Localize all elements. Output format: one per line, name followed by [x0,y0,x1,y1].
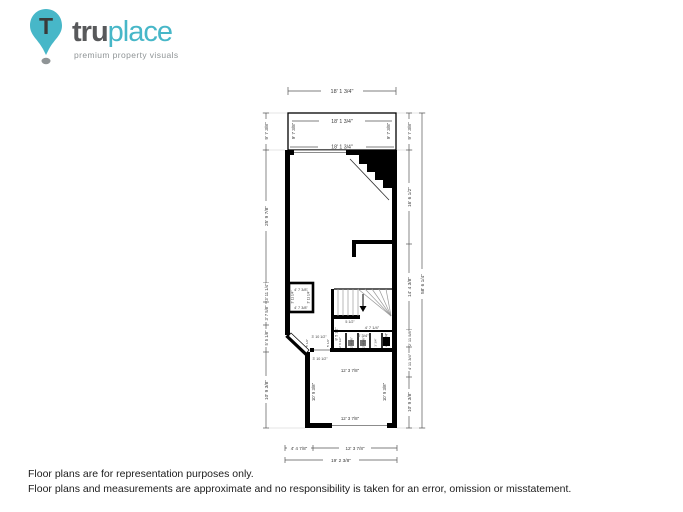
dim-hall-top: 3' 10 1/2" [312,335,328,339]
dim-bath-c2: 2' 4 5/8" [350,337,354,348]
dim-room-left: 10' 9 3/8" [311,382,316,401]
dim-top-overall: 18' 1 3/4" [331,89,354,95]
dim-main-top-width: 18' 1 3/4" [331,145,353,151]
dim-bath-c4: 3' 3/4" [374,338,378,346]
stair-left-wall [331,289,334,352]
bottom-room: 12' 3 7/8" 10' 9 3/8" 10' 9 3/8" 12' 3 7… [311,368,387,421]
dim-hall-left: 5' 1/2" [305,339,309,347]
dim-right-seg1: 9' 7 3/8" [407,122,413,140]
dim-room-right: 10' 9 3/8" [382,382,387,401]
dim-line-top: 18' 1 3/4" [288,86,396,95]
dim-left-seg1: 9' 7 3/8" [264,122,270,140]
dim-deck-left: 9' 7 3/8" [291,122,296,139]
disclaimer-line-2: Floor plans and measurements are approxi… [28,483,571,495]
dim-hall-right: 5' 1/2" [326,339,330,347]
dim-closet-bottom: 4' 7 3/8" [294,306,308,310]
dim-deck-right: 9' 7 3/8" [386,122,391,139]
stair-arrow-head [360,306,367,312]
page: T truplace premium property visuals 18' … [0,0,683,512]
dim-right-total: 58' 6 1/4" [420,274,426,294]
dim-hall-door: 3' 10 1/2" [313,357,329,361]
dim-right-seg3: 14' 4 3/8" [407,277,413,297]
wall-right [392,150,397,428]
dim-left-seg3: 3' 11 1/4" [264,283,269,301]
dim-bottom-seg2: 12' 3 7/8" [345,446,364,451]
wall-left-lower [305,352,310,428]
dim-bath-c3: 2' 4 5/8" [362,337,366,348]
dim-stair-width: 4' 7 1/4" [365,325,380,330]
dim-bottom-seg1: 4' 4 7/8" [291,446,308,451]
dim-deck-width: 18' 1 3/4" [331,119,353,125]
wall-bottom-left [305,423,332,428]
wall-bottom-right [387,423,397,428]
deck: 18' 1 3/4" 9' 7 3/8" 9' 7 3/8" 18' 1 3/4… [288,113,396,151]
bathroom: 8' 3/4" 2' 8 1/2" 2' 4 5/8" 2' 4 5/8" 3'… [334,331,392,348]
dim-line-right-outer: 58' 6 1/4" [418,113,426,428]
dim-left-seg5: 5' 5 1/8" [264,330,269,346]
floor-plan: 18' 1 3/4" 9' 7 3/8" 9' 7 3/8" 18' 1 3/4… [0,0,683,512]
dim-bottom-total: 19' 2 3/8" [331,458,351,464]
dim-left-seg4: 3' 7 5/8" [264,305,269,321]
dim-right-seg6: 10' 9 3/8" [407,392,413,412]
dim-line-bottom: 4' 4 7/8" 12' 3 7/8" 19' 2 3/8" [285,444,397,464]
fireplace [350,155,392,200]
dim-right-seg4: 2' 11 5/8" [407,329,412,346]
dim-left-seg2: 25' 9 7/8" [264,206,270,226]
dim-room-bottom-width: 12' 3 7/8" [341,416,360,421]
dim-right-seg5: 4' 11 3/4" [407,353,412,370]
dim-bath-c1: 2' 8 1/2" [338,337,342,348]
kitchen-wall [352,240,397,257]
dim-right-seg2: 16' 6 1/2" [407,187,413,207]
fireplace-steps [359,155,392,188]
dim-closet-right: 3' 11 1/4" [307,290,311,303]
fixture-dark [383,337,390,346]
dim-closet-left: 3' 11 1/4" [291,290,295,303]
dim-line-right-inner: 9' 7 3/8" 16' 6 1/2" 14' 4 3/8" 2' 11 5/… [405,113,413,428]
floor-plan-svg: 18' 1 3/4" 9' 7 3/8" 9' 7 3/8" 18' 1 3/4… [0,0,683,512]
dim-room-top-width: 12' 3 7/8" [341,368,360,373]
disclaimer: Floor plans are for representation purpo… [28,468,571,498]
interior-wall [330,348,397,352]
closet: 4' 7 3/8" 4' 7 3/8" 3' 11 1/4" 3' 11 1/4… [289,283,313,312]
disclaimer-line-1: Floor plans are for representation purpo… [28,468,571,480]
dim-line-left: 9' 7 3/8" 25' 9 7/8" 3' 11 1/4" 3' 7 5/8… [262,113,270,428]
dim-left-seg6: 10' 9 3/8" [264,380,270,400]
dim-stair-nose: 5 1/2" [345,320,355,324]
